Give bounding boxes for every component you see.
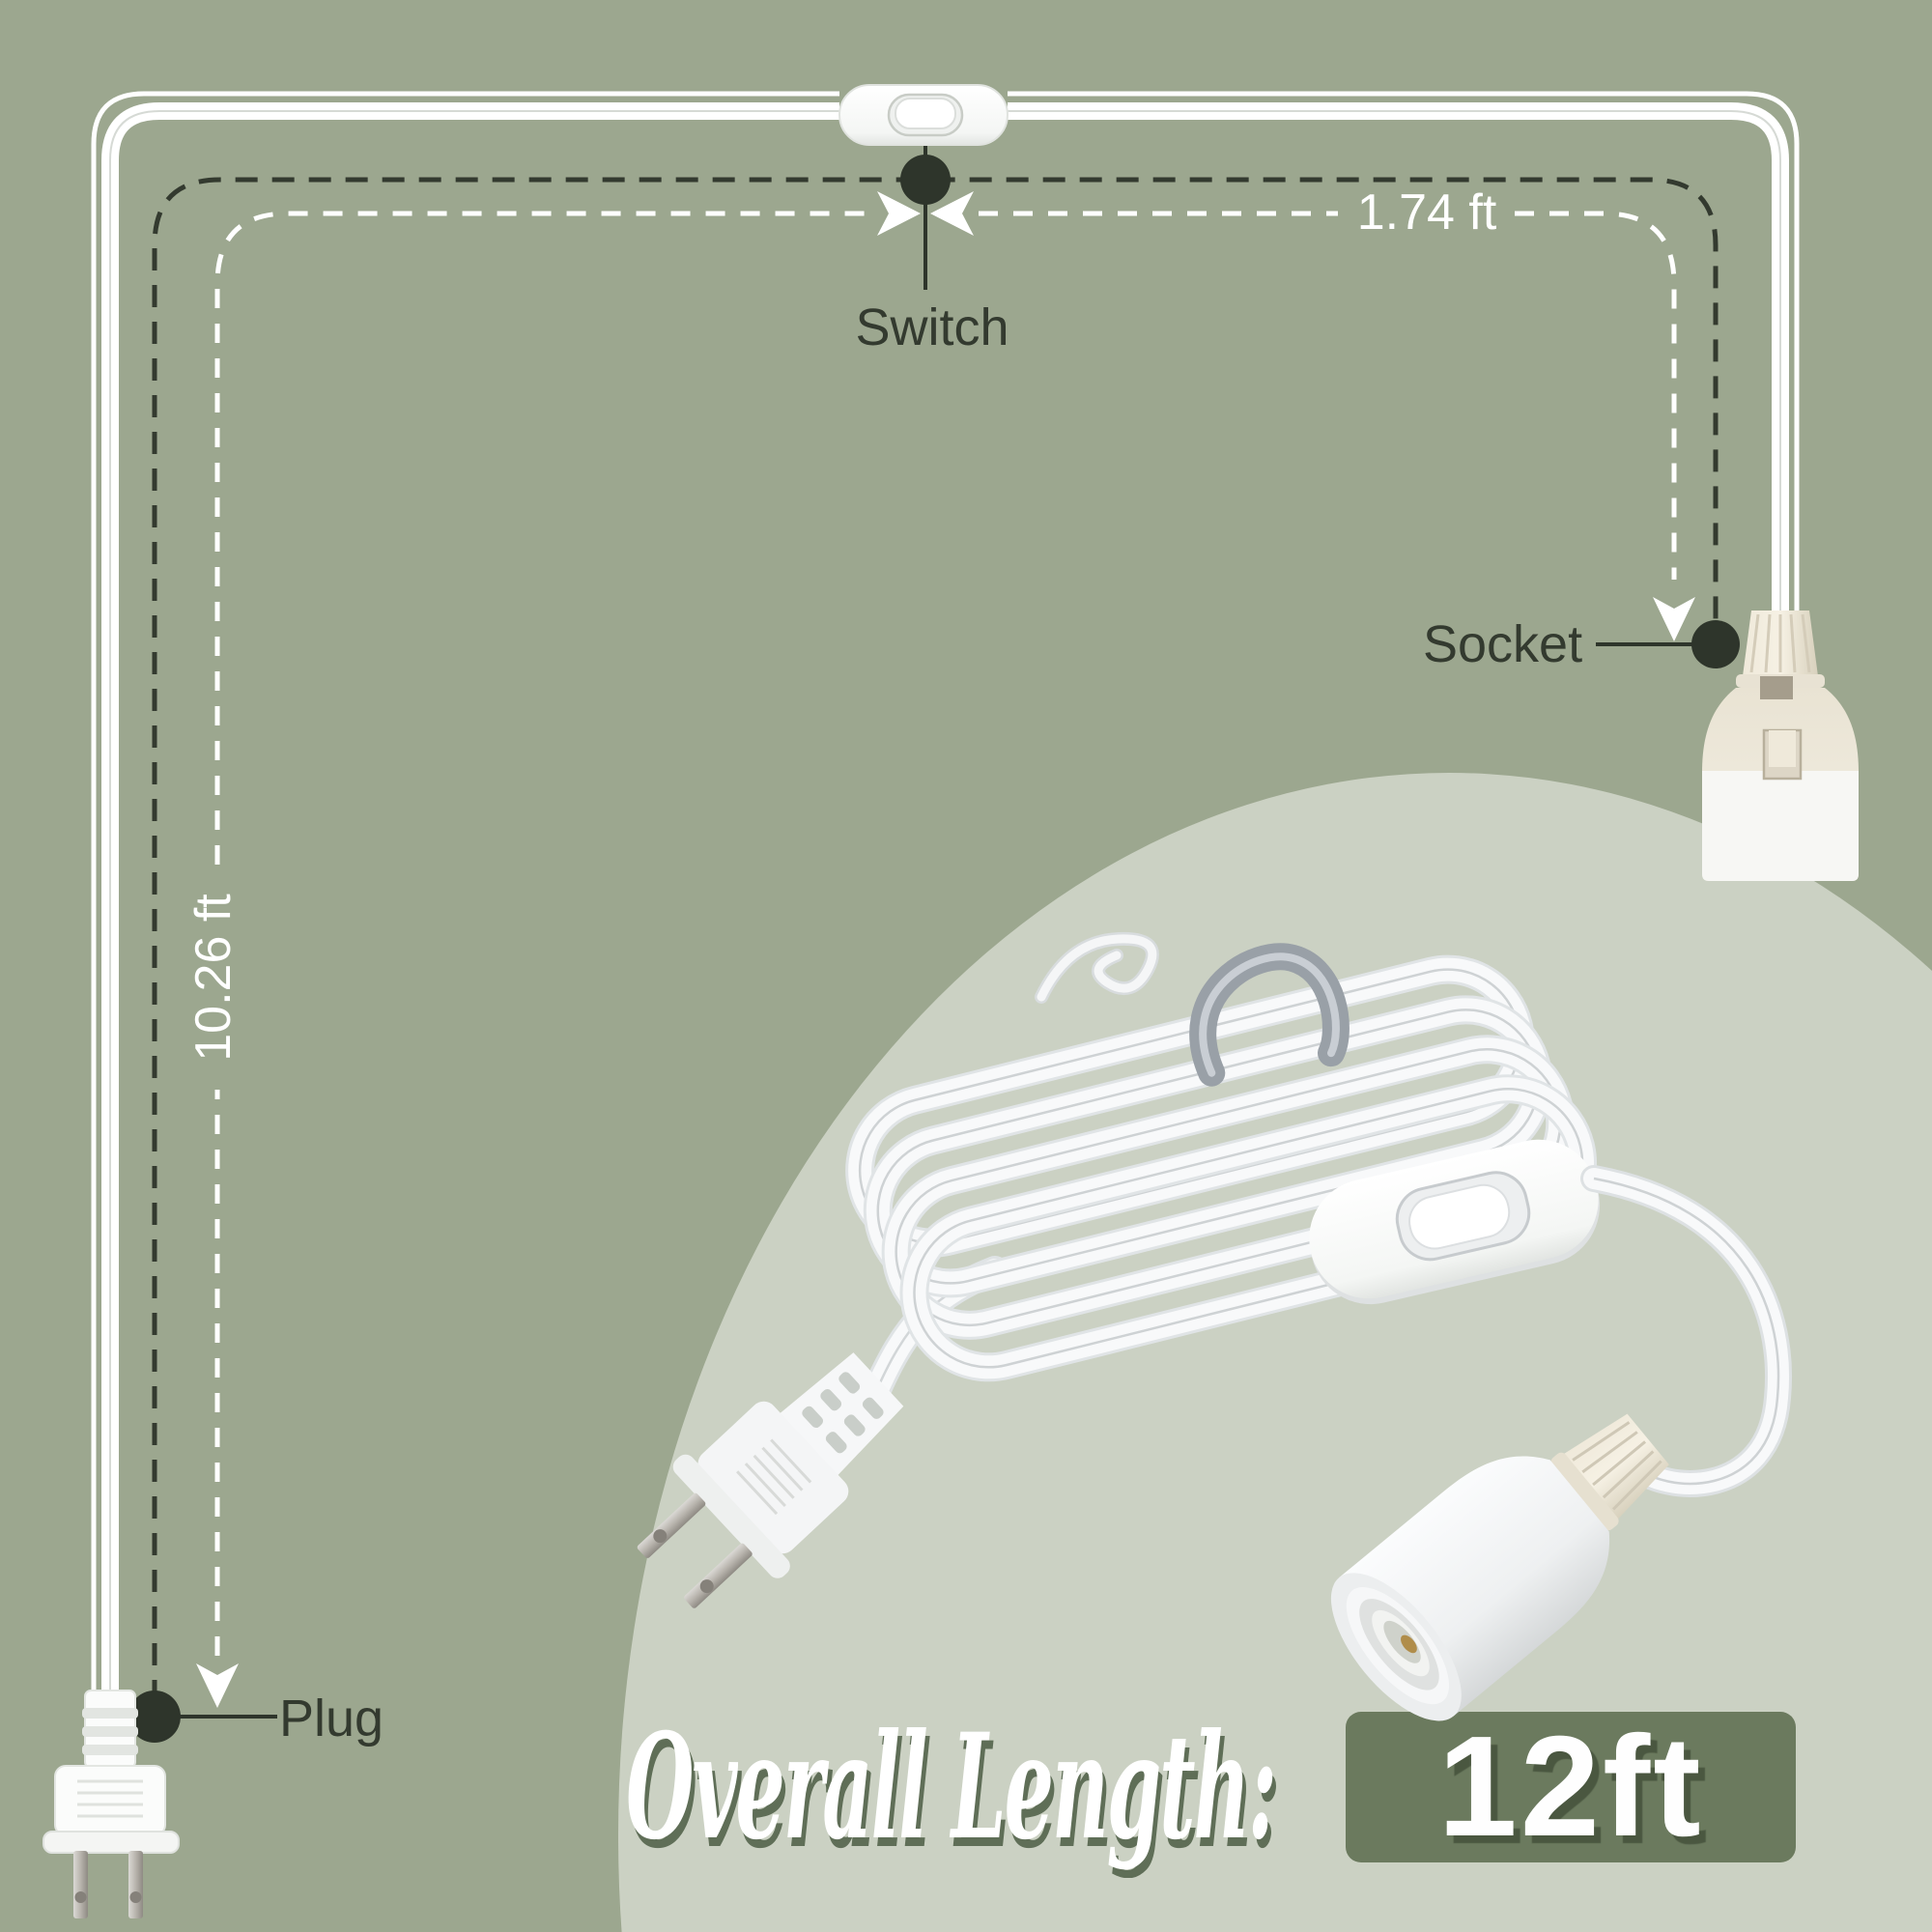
dimension-switch-to-socket: 1.74 ft [1357,187,1497,238]
overall-length-value: 12ft [1346,1712,1796,1862]
plug-label: Plug [279,1692,384,1745]
hanging-lamp-cord-infographic: Switch Socket Plug 1.74 ft 10.26 ft Over… [0,0,1932,1932]
infographic-art [0,0,1932,1932]
overall-length-script: Overall Length: [626,1702,1275,1872]
socket-label: Socket [1423,618,1582,670]
socket-point-dot [1691,620,1740,668]
switch-label: Switch [855,301,1009,354]
diagram-inline-switch [839,85,1008,145]
dimension-plug-to-switch: 10.26 ft [188,894,239,1061]
switch-point-dot [900,155,951,205]
